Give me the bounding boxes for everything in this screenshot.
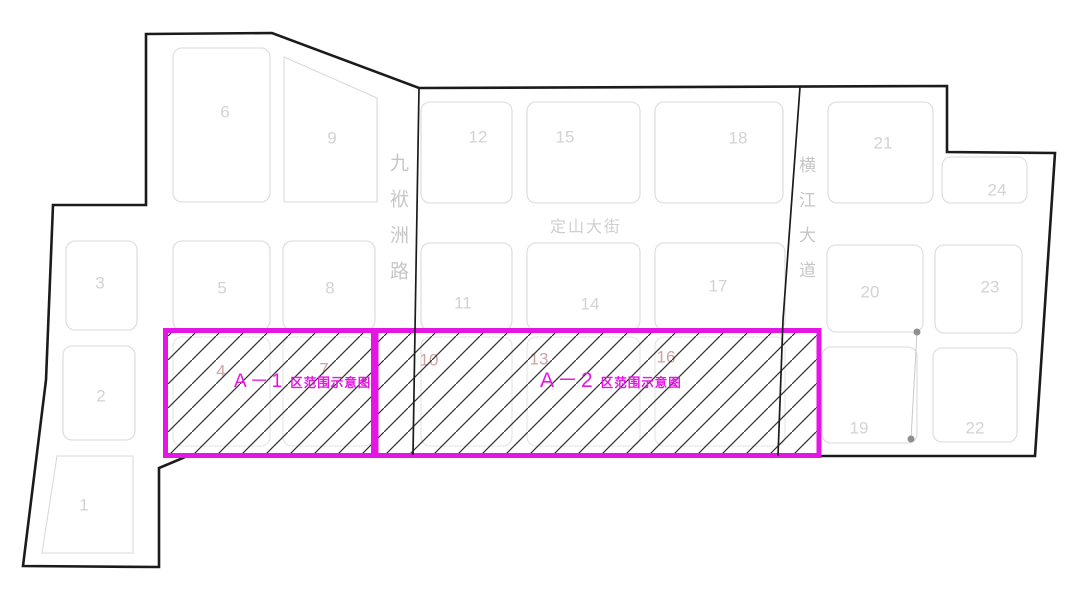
parcel-number-17: 17 — [709, 277, 728, 296]
parcel-number-21: 21 — [874, 134, 893, 153]
parcel-number-3: 3 — [95, 274, 104, 293]
zone-a1-hatched-area — [166, 331, 374, 456]
street-label-dingshan-street: 定山大街 — [550, 213, 622, 237]
street-label-jiufuzhou-road: 九袱洲路 — [384, 153, 411, 297]
parcel-number-24: 24 — [988, 181, 1007, 200]
parcel-number-2: 2 — [96, 387, 105, 406]
parcel-number-12: 12 — [469, 128, 488, 147]
site-boundary-outline — [23, 33, 1055, 567]
corner-dot — [908, 436, 915, 443]
parcel-block-11 — [421, 243, 512, 330]
parcel-number-14: 14 — [581, 295, 600, 314]
zone-a1-code: A－1 — [234, 366, 285, 393]
parcel-block-18 — [655, 102, 783, 203]
parcel-block-23 — [935, 245, 1022, 333]
parcel-block-12 — [421, 102, 512, 203]
parcels-layer: 123456789101112131415161718192021222324 — [42, 48, 1027, 553]
parcel-number-22: 22 — [966, 419, 985, 438]
parcel-number-15: 15 — [556, 128, 575, 147]
zone-a2-caption: A－2 区范围示意图 — [540, 364, 682, 394]
parcel-block-24 — [942, 157, 1027, 203]
parcel-number-11: 11 — [454, 294, 472, 313]
parcel-block-15 — [527, 102, 640, 203]
parcel-block-21 — [828, 102, 933, 203]
parcel-number-18: 18 — [729, 129, 748, 148]
parcel-number-1: 1 — [79, 496, 88, 515]
parcel-block-6 — [173, 48, 270, 202]
zone-a1-caption: A－1 区范围示意图 — [234, 366, 371, 393]
zone-a2-caption-text: 区范围示意图 — [601, 372, 682, 391]
parcel-number-5: 5 — [217, 279, 226, 298]
zone-a1-caption-text: 区范围示意图 — [290, 372, 371, 391]
corner-dot — [914, 329, 921, 336]
parcel-block-14 — [527, 243, 640, 330]
parcel-number-9: 9 — [327, 129, 336, 148]
parcel-number-8: 8 — [325, 279, 334, 298]
zone-a2-code: A－2 — [540, 364, 596, 394]
parcel-number-23: 23 — [981, 278, 1000, 297]
parcel-block-19 — [822, 347, 917, 443]
parcel-number-20: 20 — [861, 283, 880, 302]
parcel-number-19: 19 — [850, 419, 869, 438]
parcel-number-6: 6 — [220, 103, 229, 122]
street-label-hengjiang-avenue: 横江大道 — [793, 156, 818, 296]
site-plan-drawing: 123456789101112131415161718192021222324 — [0, 0, 1080, 599]
site-plan-canvas: 123456789101112131415161718192021222324 … — [0, 0, 1080, 599]
